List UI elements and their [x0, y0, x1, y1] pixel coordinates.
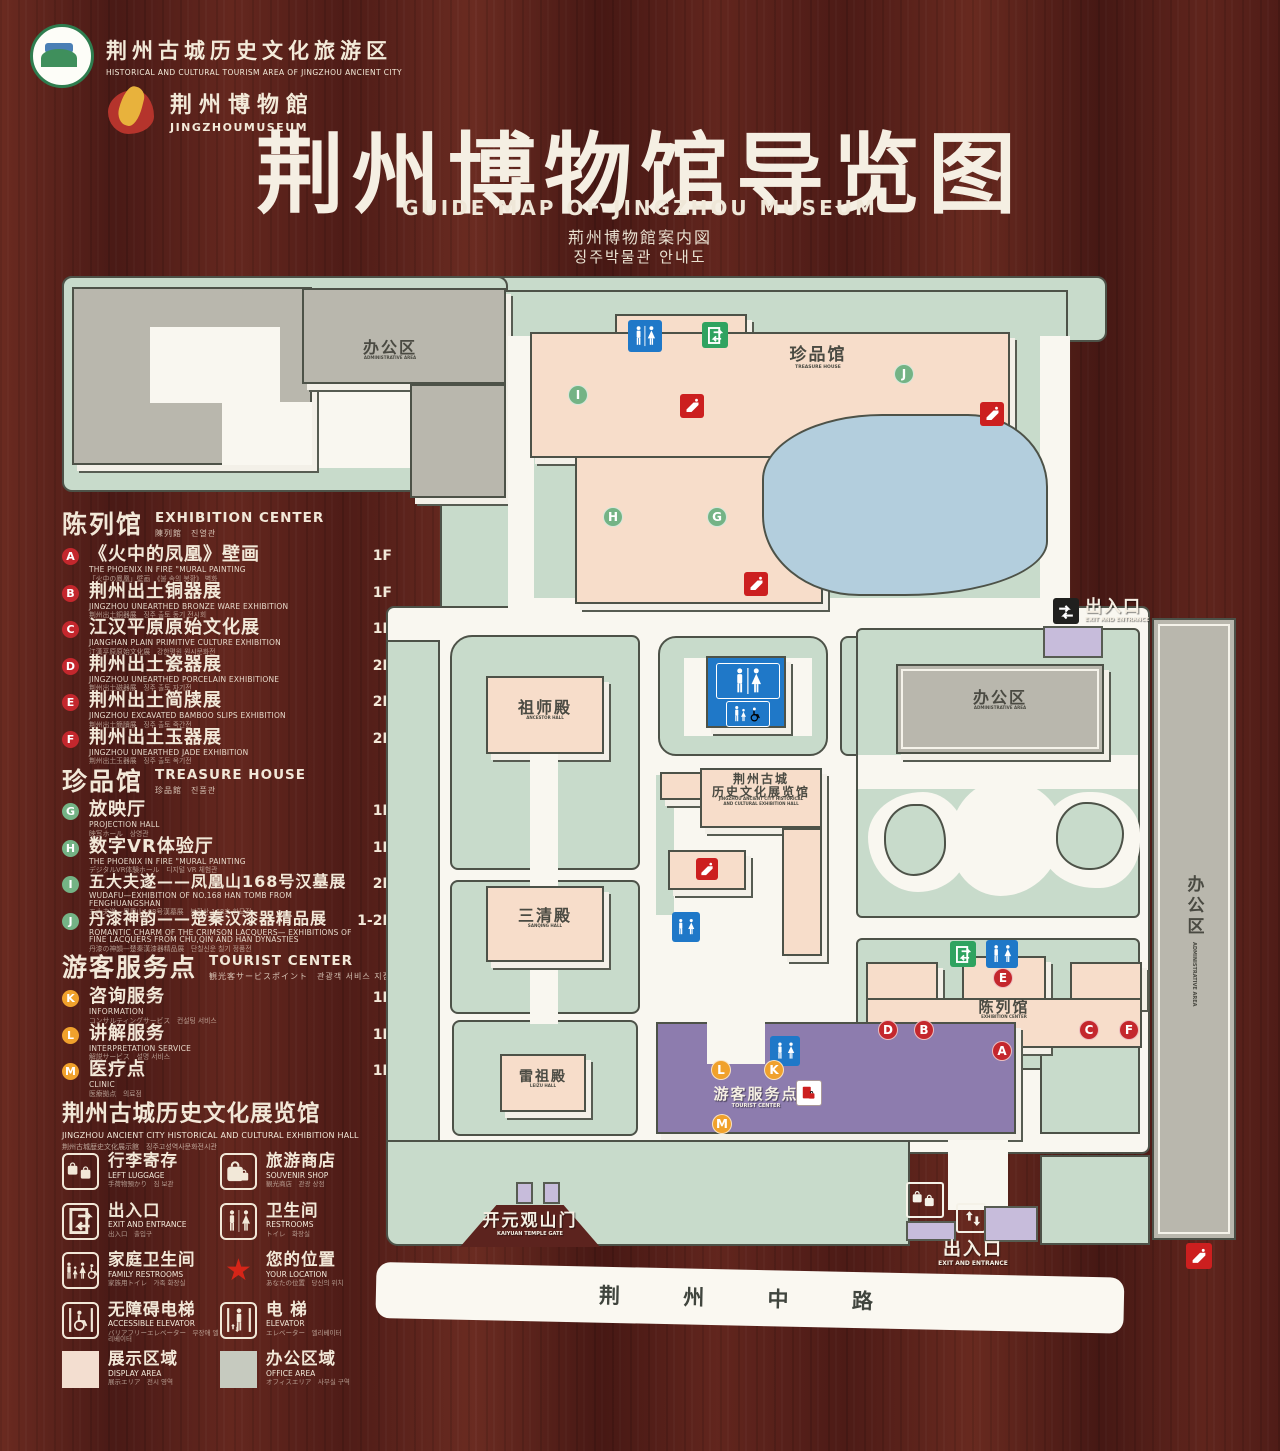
south-lawn-east [1040, 1155, 1150, 1245]
family-restrooms-icon [62, 1252, 99, 1289]
legend-items-treasure: G放映厅PROJECTION HALL映写ホール 상영관1F H数字VR体验厅T… [62, 801, 392, 957]
escalator-sign-icon [980, 402, 1004, 426]
gate-building [906, 1221, 956, 1241]
south-exit-walkway [948, 1140, 1008, 1210]
restroom-sign-icon [716, 663, 780, 699]
item-badge: C [62, 621, 79, 638]
gate-post [516, 1182, 533, 1204]
section-title-sub: 陳列館 진열관 [155, 528, 324, 539]
legend-item: B荆州出土铜器展JINGZHOU UNEARTHED BRONZE WARE E… [62, 583, 392, 620]
accessible-elevator-icon [62, 1302, 99, 1339]
legend-item: H数字VR体验厅THE PHOENIX IN FIRE "MURAL PAINT… [62, 838, 392, 875]
souvenir-shop-icon [220, 1153, 257, 1190]
facility-souvenir-shop: 旅游商店SOUVENIR SHOP観光商店 관광 상점 [220, 1153, 392, 1203]
map-badge-M: M [712, 1114, 732, 1134]
office-strip-building: 办公区 ADMINISTRATIVE AREA [1152, 618, 1236, 1240]
map-badge-D: D [878, 1020, 898, 1040]
legend-section-tourist-center: 游客服务点 TOURIST CENTER 観光客サービスポイント 관광객 서비스… [62, 948, 391, 984]
legend-item: C江汉平原原始文化展JIANGHAN PLAIN PRIMITIVE CULTU… [62, 619, 392, 656]
facility-legend: 行李寄存LEFT LUGGAGE手荷物預かり 짐 보관 旅游商店SOUVENIR… [62, 1153, 392, 1401]
west-lawn [386, 640, 440, 1220]
section-title-en: EXHIBITION CENTER [155, 510, 324, 526]
map-badge-F: F [1119, 1020, 1139, 1040]
tourism-area-name-en: HISTORICAL AND CULTURAL TOURISM AREA OF … [106, 68, 402, 77]
facility-display-area: 展示区域DISPLAY AREA展示エリア 전시 영역 [62, 1351, 220, 1401]
legend-item: F荆州出土玉器展JINGZHOU UNEARTHED JADE EXHIBITI… [62, 729, 392, 766]
map-badge-J: J [894, 364, 914, 384]
item-floor: 1F [354, 585, 392, 601]
page-title-ja: 荊州博物館案内図 [0, 224, 1280, 248]
restroom-sign-icon [986, 940, 1018, 968]
legend-item: M医疗点CLINIC医療拠点 의료점1F [62, 1061, 392, 1098]
exit-entrance-sign-icon [956, 1203, 986, 1233]
map-badge-E: E [993, 968, 1013, 988]
exit-entrance-icon [62, 1203, 99, 1240]
leizu-hall-label: 雷祖殿 LEIZU HALL [494, 1070, 592, 1089]
tourism-area-logo: 荆州古城历史文化旅游区 HISTORICAL AND CULTURAL TOUR… [30, 24, 402, 88]
map-badge-B: B [914, 1020, 934, 1040]
section-title-zh: 陈列馆 [62, 505, 143, 541]
legend-item: D荆州出土瓷器展JINGZHOU UNEARTHED PORCELAIN EXH… [62, 656, 392, 693]
tourist-center-notch [707, 1020, 765, 1064]
family-restroom-sign-icon [726, 701, 770, 727]
tourism-area-name-zh: 荆州古城历史文化旅游区 [106, 35, 402, 65]
office-building-lower-wing [410, 384, 506, 498]
page-title-ko: 징주박물관 안내도 [0, 246, 1280, 267]
item-badge: B [62, 585, 79, 602]
legend-section-treasure-house: 珍品馆 TREASURE HOUSE 珍品館 진품관 [62, 762, 306, 798]
item-badge: K [62, 990, 79, 1007]
item-badge: L [62, 1027, 79, 1044]
ancestor-hall-label: 祖师殿 ANCESTOR HALL [486, 700, 604, 722]
item-badge: I [62, 876, 79, 893]
section-title-zh: 珍品馆 [62, 762, 143, 798]
section-title-sub: 観光客サービスポイント 관광객 서비스 지점 [209, 971, 391, 982]
pond-island [884, 804, 946, 876]
item-badge: E [62, 694, 79, 711]
map-badge-K: K [764, 1060, 784, 1080]
exit-entrance-sign-icon [1053, 598, 1079, 624]
map-badge-C: C [1079, 1020, 1099, 1040]
section-title-en: TREASURE HOUSE [155, 767, 306, 783]
gate-post [543, 1182, 560, 1204]
office-area-label-right: 办公区 ADMINISTRATIVE AREA [900, 690, 1100, 712]
gate-building [984, 1206, 1038, 1242]
kaiyuan-gate-label: 开元观山门 KAIYUAN TEMPLE GATE [448, 1212, 612, 1237]
section-title-sub: 珍品館 진품관 [155, 785, 306, 796]
item-badge: D [62, 658, 79, 675]
restroom-sign-icon [628, 320, 662, 352]
left-luggage-icon [62, 1153, 99, 1190]
facility-office-area: 办公区域OFFICE AREAオフィスエリア 사무실 구역 [220, 1351, 392, 1401]
facility-restrooms: 卫生间RESTROOMSトイレ 화장실 [220, 1203, 392, 1253]
item-badge: G [62, 803, 79, 820]
facility-your-location: ★ 您的位置YOUR LOCATIONあなたの位置 당신의 위치 [220, 1252, 392, 1302]
pond-island [1056, 802, 1124, 870]
legend-hall-note: 荆州古城历史文化展览馆 JINGZHOU ANCIENT CITY HISTOR… [62, 1096, 392, 1152]
exit-sign-icon [950, 941, 976, 967]
exhibition-hall-label: 荆州古城 历史文化展览馆 JINGZHOU ANCIENT CITY HISTO… [690, 773, 832, 808]
office-building-wing [302, 288, 506, 384]
legend-section-exhibition-center: 陈列馆 EXHIBITION CENTER 陳列館 진열관 [62, 505, 324, 541]
exhibition-hall-wing [782, 828, 822, 956]
legend-item: E荆州出土简牍展JINGZHOU EXCAVATED BAMBOO SLIPS … [62, 692, 392, 729]
facility-family-restrooms: 家庭卫生间FAMILY RESTROOMS家族用トイレ 가족 화장실 [62, 1252, 220, 1302]
hall-note-zh: 荆州古城历史文化展览馆 [62, 1096, 392, 1128]
section-title-en: TOURIST CENTER [209, 953, 391, 969]
section-title-zh: 游客服务点 [62, 948, 197, 984]
facility-accessible-elevator: 无障碍电梯ACCESSIBLE ELEVATORバリアフリーエレベーター 무장애… [62, 1302, 220, 1352]
legend-items-tourist: K咨询服务INFORMATIONコンサルティングサービス 컨설팅 서비스1F L… [62, 988, 392, 1098]
office-area-label-tl: 办公区 ADMINISTRATIVE AREA [330, 340, 450, 362]
hall-note-en: JINGZHOU ANCIENT CITY HISTORICAL AND CUL… [62, 1131, 392, 1140]
legend-item: L讲解服务INTERPRETATION SERVICE解説サービス 설명 서비스… [62, 1025, 392, 1062]
sanqing-hall-label: 三清殿 SANQING HALL [486, 908, 604, 930]
treasure-house-label: 珍品馆 TREASURE HOUSE [758, 347, 878, 370]
item-badge: A [62, 548, 79, 565]
item-badge: M [62, 1063, 79, 1080]
exit-entrance-label-bottom: 出入口 EXIT AND ENTRANCE [908, 1240, 1038, 1267]
map-badge-A: A [992, 1041, 1012, 1061]
restrooms-icon [220, 1203, 257, 1240]
gate-building [1043, 626, 1103, 658]
legend-item: I五大夫遂——凤凰山168号汉墓展WUDAFU—EXHIBITION OF NO… [62, 874, 392, 911]
escalator-sign-icon [696, 858, 718, 880]
office-strip-label: 办公区 ADMINISTRATIVE AREA [1154, 875, 1234, 1007]
office-courtyard-cut [222, 402, 312, 465]
office-inner-courtyard [150, 327, 280, 403]
exhibition-center-label: 陈列馆 EXHIBITION CENTER [952, 1000, 1056, 1020]
item-floor: 1F [354, 548, 392, 564]
item-badge: J [62, 913, 79, 930]
office-area-swatch [220, 1351, 257, 1388]
left-luggage-sign-icon [796, 1080, 822, 1106]
map-badge-L: L [711, 1060, 731, 1080]
facility-exit-entrance: 出入口EXIT AND ENTRANCE出入口 출입구 [62, 1203, 220, 1253]
museum-guide-poster: 荆州古城历史文化旅游区 HISTORICAL AND CULTURAL TOUR… [0, 0, 1280, 1451]
facility-elevator: 电 梯ELEVATORエレベーター 엘리베이터 [220, 1302, 392, 1352]
your-location-star-icon: ★ [220, 1252, 257, 1289]
road-label: 荆 州 中 路 [599, 1280, 901, 1316]
restroom-building [706, 656, 786, 728]
legend-items-exhibition: A《火中的凤凰》壁画THE PHOENIX IN FIRE "MURAL PAI… [62, 546, 392, 766]
page-title-en: GUIDE MAP OF JINGZHOU MUSEUM [0, 196, 1280, 220]
escalator-sign-icon [1186, 1243, 1212, 1269]
tourism-area-logo-icon [30, 24, 94, 88]
exit-sign-icon [702, 322, 728, 348]
item-badge: H [62, 840, 79, 857]
lake [762, 414, 1048, 596]
legend-item: A《火中的凤凰》壁画THE PHOENIX IN FIRE "MURAL PAI… [62, 546, 392, 583]
map-badge-H: H [603, 507, 623, 527]
facility-left-luggage: 行李寄存LEFT LUGGAGE手荷物預かり 짐 보관 [62, 1153, 220, 1203]
map-badge-I: I [568, 385, 588, 405]
left-luggage-sign-icon [906, 1182, 944, 1218]
display-area-swatch [62, 1351, 99, 1388]
escalator-sign-icon [744, 572, 768, 596]
restroom-sign-icon [672, 912, 700, 942]
escalator-sign-icon [680, 394, 704, 418]
legend-item: K咨询服务INFORMATIONコンサルティングサービス 컨설팅 서비스1F [62, 988, 392, 1025]
elevator-icon [220, 1302, 257, 1339]
item-badge: F [62, 731, 79, 748]
legend-item: G放映厅PROJECTION HALL映写ホール 상영관1F [62, 801, 392, 838]
road-jingzhou-middle: 荆 州 中 路 [375, 1262, 1124, 1334]
map-badge-G: G [707, 507, 727, 527]
